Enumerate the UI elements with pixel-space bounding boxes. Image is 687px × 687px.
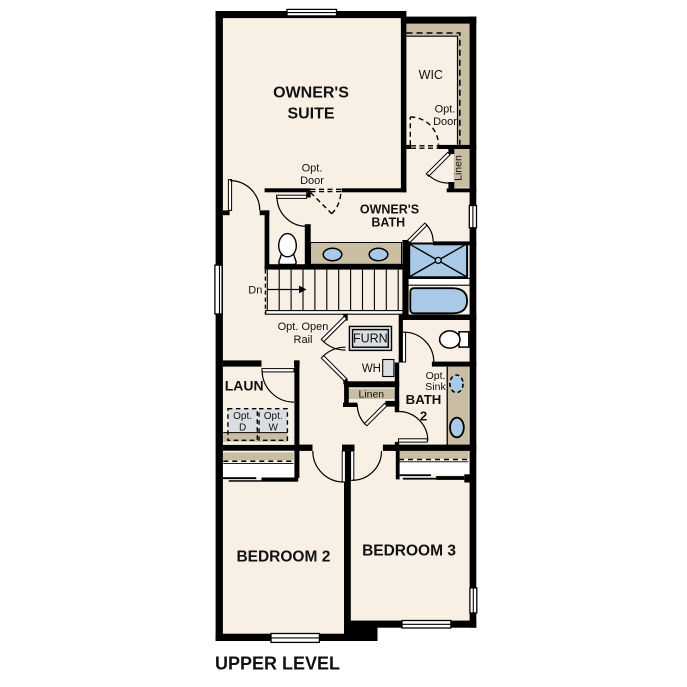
svg-text:Linen: Linen [452,155,464,181]
svg-text:Opt.: Opt. [233,411,252,422]
svg-text:FURN: FURN [353,332,388,346]
svg-text:SUITE: SUITE [287,106,334,123]
svg-text:LAUN: LAUN [225,378,264,394]
svg-text:2: 2 [420,408,427,423]
svg-text:BATH: BATH [406,392,442,407]
svg-text:Opt.: Opt. [264,411,283,422]
svg-text:W: W [268,423,278,434]
svg-text:Linen: Linen [358,388,384,400]
svg-text:BATH: BATH [371,215,405,229]
svg-text:Dn: Dn [248,284,262,296]
svg-text:D: D [239,423,246,434]
svg-text:BEDROOM 3: BEDROOM 3 [362,543,456,560]
svg-text:OWNER'S: OWNER'S [360,202,419,216]
svg-text:UPPER LEVEL: UPPER LEVEL [215,654,340,674]
svg-text:BEDROOM 2: BEDROOM 2 [236,549,330,566]
svg-text:Door: Door [300,175,324,187]
svg-text:Opt. Open: Opt. Open [278,321,329,333]
svg-text:Door: Door [433,116,457,128]
svg-text:OWNER'S: OWNER'S [273,85,349,102]
svg-text:WIC: WIC [419,68,443,82]
svg-text:Rail: Rail [294,334,313,346]
svg-text:Opt.: Opt. [435,104,456,116]
svg-text:WH: WH [362,363,381,375]
svg-text:Opt.: Opt. [302,163,323,175]
